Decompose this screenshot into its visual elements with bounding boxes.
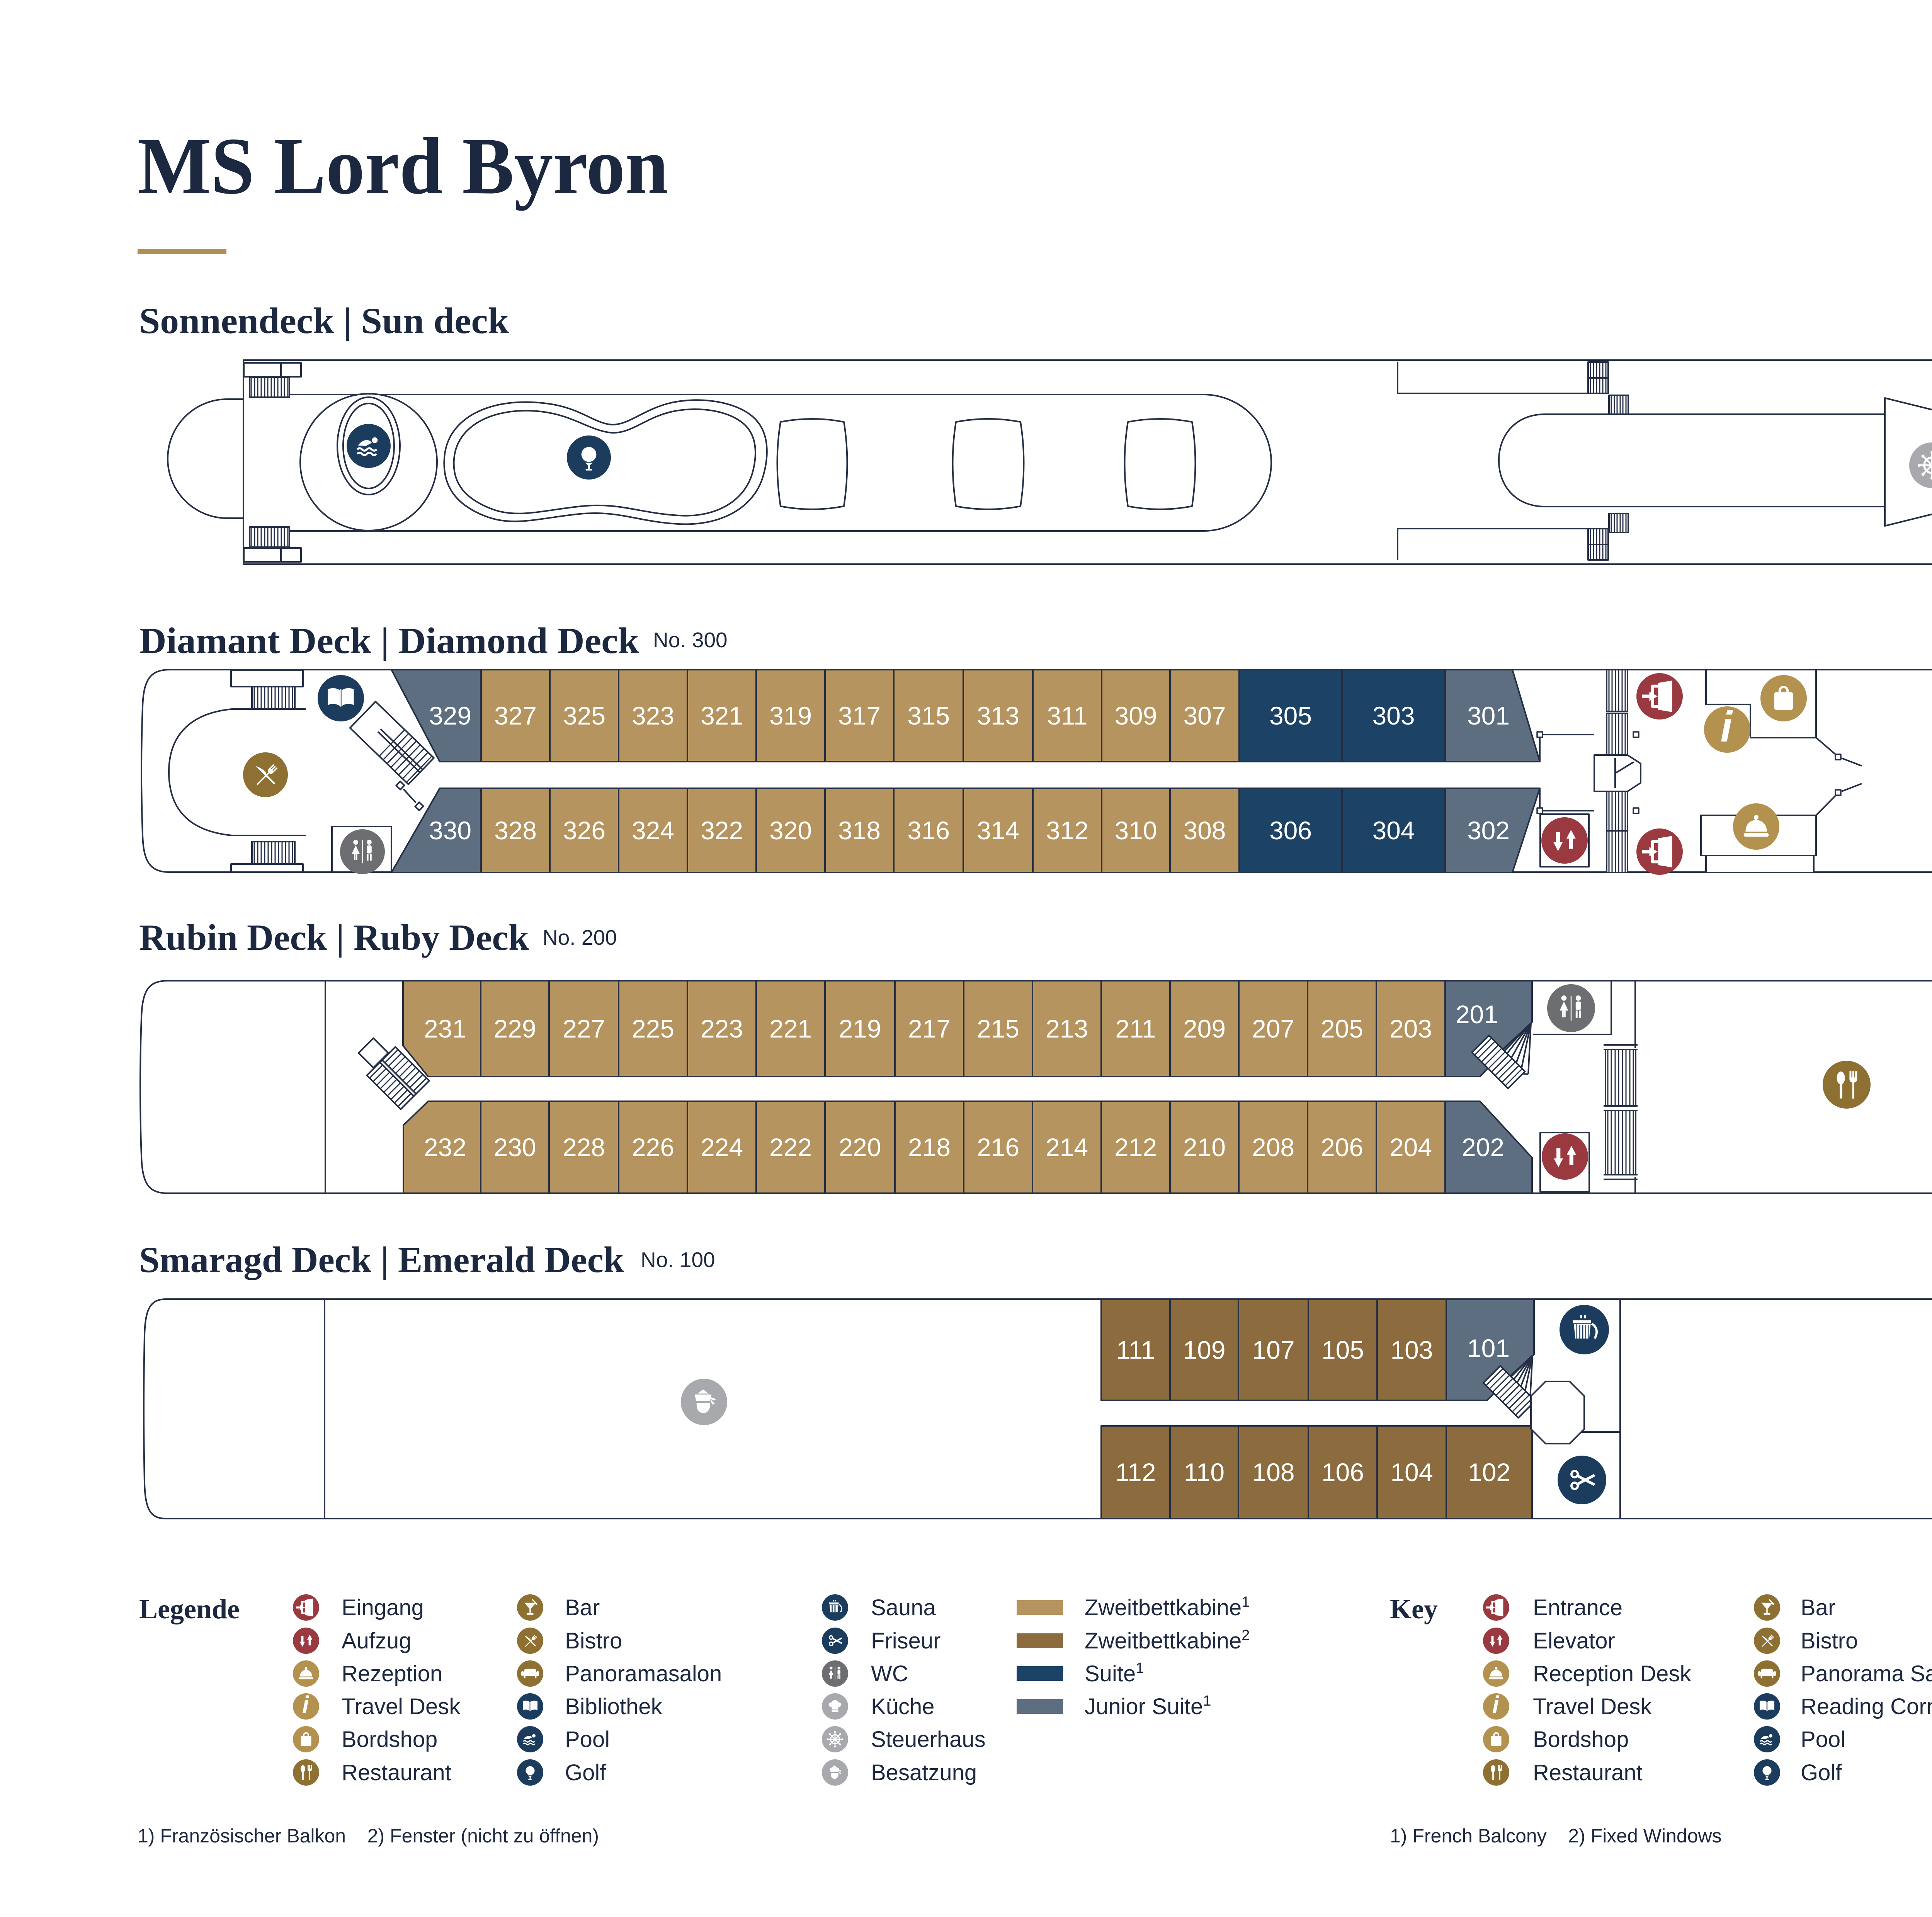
- svg-text:201: 201: [1456, 1000, 1498, 1029]
- svg-text:315: 315: [907, 701, 950, 730]
- svg-text:Bordshop: Bordshop: [342, 1727, 437, 1752]
- svg-text:Key: Key: [1390, 1594, 1438, 1624]
- svg-text:No. 200: No. 200: [543, 925, 617, 949]
- svg-text:Bar: Bar: [565, 1595, 600, 1620]
- svg-text:321: 321: [701, 701, 743, 730]
- svg-text:227: 227: [563, 1014, 605, 1043]
- svg-text:Suite1: Suite1: [1085, 1660, 1144, 1686]
- svg-text:Zweitbettkabine2: Zweitbettkabine2: [1085, 1627, 1250, 1653]
- svg-text:232: 232: [424, 1133, 466, 1162]
- svg-text:323: 323: [632, 701, 674, 730]
- svg-text:230: 230: [493, 1133, 536, 1162]
- svg-text:Bistro: Bistro: [565, 1628, 622, 1653]
- svg-text:101: 101: [1467, 1334, 1510, 1362]
- svg-text:312: 312: [1046, 816, 1088, 845]
- svg-text:Pool: Pool: [565, 1727, 610, 1752]
- svg-text:330: 330: [429, 816, 471, 845]
- svg-text:224: 224: [701, 1133, 743, 1162]
- svg-text:208: 208: [1252, 1133, 1294, 1162]
- svg-text:Steuerhaus: Steuerhaus: [871, 1727, 986, 1752]
- svg-text:313: 313: [977, 701, 1019, 730]
- svg-text:303: 303: [1372, 701, 1415, 730]
- svg-text:329: 329: [429, 701, 471, 730]
- svg-text:112: 112: [1115, 1458, 1156, 1487]
- svg-text:Bordshop: Bordshop: [1533, 1727, 1629, 1752]
- svg-text:Travel Desk: Travel Desk: [342, 1694, 461, 1719]
- svg-text:Küche: Küche: [871, 1694, 934, 1719]
- svg-text:Sauna: Sauna: [871, 1595, 936, 1620]
- svg-text:1) Französischer Balkon 2): 1) Französischer Balkon 2) Fenster (nich…: [138, 1825, 599, 1847]
- svg-text:No. 100: No. 100: [641, 1248, 715, 1272]
- svg-text:225: 225: [632, 1014, 674, 1043]
- svg-text:301: 301: [1467, 701, 1510, 730]
- svg-text:207: 207: [1252, 1014, 1294, 1043]
- svg-text:328: 328: [494, 816, 537, 845]
- svg-text:222: 222: [769, 1133, 812, 1162]
- svg-text:Smaragd Deck | Emerald Deck: Smaragd Deck | Emerald Deck: [139, 1239, 624, 1280]
- svg-text:109: 109: [1183, 1336, 1225, 1364]
- svg-text:111: 111: [1116, 1336, 1155, 1364]
- svg-text:Sonnendeck | Sun deck: Sonnendeck | Sun deck: [139, 300, 509, 341]
- svg-text:304: 304: [1372, 816, 1415, 845]
- svg-text:1) French Balcony 2) Fixed: 1) French Balcony 2) Fixed Windows: [1390, 1825, 1722, 1847]
- svg-text:213: 213: [1046, 1014, 1088, 1043]
- svg-text:211: 211: [1115, 1014, 1156, 1043]
- svg-text:Bar: Bar: [1801, 1595, 1835, 1620]
- svg-text:108: 108: [1252, 1458, 1294, 1487]
- svg-text:216: 216: [977, 1133, 1019, 1162]
- svg-text:106: 106: [1321, 1458, 1364, 1487]
- svg-text:Reception Desk: Reception Desk: [1533, 1661, 1691, 1686]
- svg-text:205: 205: [1321, 1014, 1363, 1043]
- svg-text:Elevator: Elevator: [1533, 1628, 1615, 1653]
- svg-text:210: 210: [1183, 1133, 1226, 1162]
- svg-text:Reading Corner: Reading Corner: [1801, 1694, 1932, 1719]
- svg-text:314: 314: [977, 816, 1019, 845]
- svg-text:302: 302: [1467, 816, 1510, 845]
- svg-text:308: 308: [1183, 816, 1226, 845]
- svg-text:Bistro: Bistro: [1801, 1628, 1858, 1653]
- svg-text:220: 220: [838, 1133, 881, 1162]
- svg-text:Pool: Pool: [1801, 1727, 1845, 1752]
- svg-text:Friseur: Friseur: [871, 1628, 940, 1653]
- svg-text:209: 209: [1183, 1014, 1226, 1043]
- svg-text:WC: WC: [871, 1661, 908, 1686]
- svg-text:104: 104: [1390, 1458, 1433, 1487]
- svg-text:Restaurant: Restaurant: [342, 1760, 451, 1785]
- svg-text:305: 305: [1269, 701, 1312, 730]
- svg-text:Restaurant: Restaurant: [1533, 1760, 1643, 1785]
- svg-text:Golf: Golf: [1801, 1760, 1842, 1785]
- svg-text:311: 311: [1047, 701, 1087, 730]
- svg-text:103: 103: [1390, 1336, 1433, 1364]
- svg-text:Entrance: Entrance: [1533, 1595, 1622, 1620]
- svg-text:215: 215: [977, 1014, 1019, 1043]
- svg-text:Panoramasalon: Panoramasalon: [565, 1661, 722, 1686]
- svg-text:Aufzug: Aufzug: [342, 1628, 412, 1653]
- svg-text:Travel Desk: Travel Desk: [1533, 1694, 1652, 1719]
- svg-text:107: 107: [1252, 1336, 1294, 1364]
- svg-text:309: 309: [1114, 701, 1157, 730]
- svg-text:327: 327: [494, 701, 537, 730]
- svg-text:110: 110: [1184, 1458, 1225, 1487]
- svg-text:105: 105: [1321, 1336, 1364, 1364]
- svg-text:Legende: Legende: [139, 1594, 240, 1624]
- svg-text:325: 325: [563, 701, 605, 730]
- svg-text:Diamant Deck | Diamond Deck: Diamant Deck | Diamond Deck: [139, 620, 639, 661]
- svg-text:322: 322: [701, 816, 743, 845]
- svg-text:223: 223: [701, 1014, 743, 1043]
- svg-text:Bibliothek: Bibliothek: [565, 1694, 662, 1719]
- svg-text:No. 300: No. 300: [653, 628, 728, 652]
- svg-text:316: 316: [907, 816, 950, 845]
- svg-text:Junior Suite1: Junior Suite1: [1085, 1693, 1211, 1719]
- svg-text:204: 204: [1389, 1133, 1432, 1162]
- svg-text:326: 326: [563, 816, 605, 845]
- svg-text:Eingang: Eingang: [342, 1595, 424, 1620]
- svg-text:MS Lord Byron: MS Lord Byron: [138, 121, 668, 211]
- svg-text:Rezeption: Rezeption: [342, 1661, 442, 1686]
- svg-text:Zweitbettkabine1: Zweitbettkabine1: [1085, 1594, 1250, 1620]
- svg-text:217: 217: [908, 1014, 951, 1043]
- svg-text:320: 320: [769, 816, 812, 845]
- svg-text:203: 203: [1389, 1014, 1432, 1043]
- svg-text:219: 219: [838, 1014, 881, 1043]
- svg-text:206: 206: [1321, 1133, 1363, 1162]
- svg-text:307: 307: [1183, 701, 1226, 730]
- svg-text:221: 221: [769, 1014, 812, 1043]
- svg-text:228: 228: [563, 1133, 605, 1162]
- svg-text:306: 306: [1269, 816, 1312, 845]
- svg-text:226: 226: [632, 1133, 674, 1162]
- svg-text:229: 229: [493, 1014, 536, 1043]
- svg-text:Panorama Salon: Panorama Salon: [1801, 1661, 1932, 1686]
- svg-text:324: 324: [632, 816, 674, 845]
- svg-text:212: 212: [1114, 1133, 1157, 1162]
- svg-text:317: 317: [838, 701, 881, 730]
- svg-text:102: 102: [1468, 1458, 1510, 1487]
- svg-text:310: 310: [1114, 816, 1157, 845]
- svg-text:318: 318: [838, 816, 881, 845]
- svg-text:Golf: Golf: [565, 1760, 606, 1785]
- svg-text:Rubin Deck | Ruby Deck: Rubin Deck | Ruby Deck: [139, 917, 529, 958]
- svg-text:214: 214: [1046, 1133, 1088, 1162]
- svg-text:202: 202: [1462, 1133, 1504, 1162]
- svg-text:218: 218: [908, 1133, 951, 1162]
- svg-text:231: 231: [424, 1014, 466, 1043]
- svg-text:Besatzung: Besatzung: [871, 1760, 977, 1785]
- svg-text:319: 319: [769, 701, 812, 730]
